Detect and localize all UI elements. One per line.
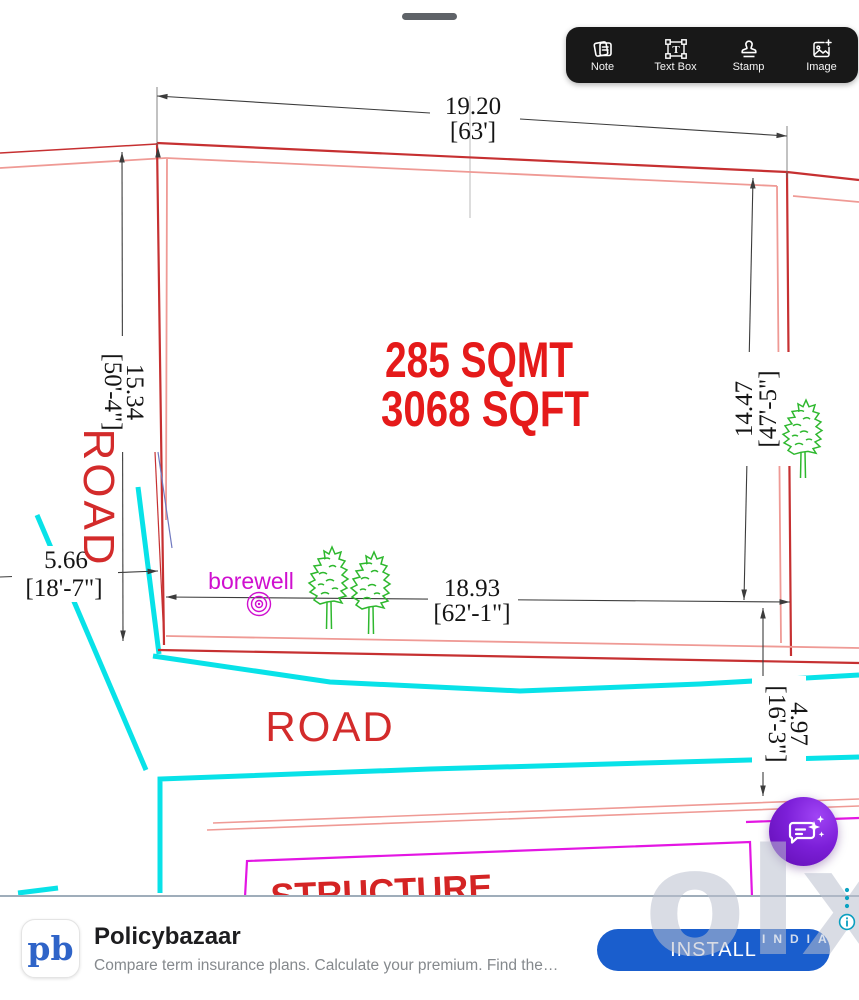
install-button-label: INSTALL (670, 939, 757, 962)
policybazaar-logo: pb (21, 919, 80, 978)
annotation-toolbar: Note T Text Box Sta (566, 27, 858, 83)
ai-assistant-fab[interactable] (769, 797, 838, 866)
plot-drawing-canvas[interactable]: 19.20 [63'] 15.34 [50'-4"] 14.47 [47'-5"… (0, 0, 859, 1000)
area-label-sqft: 3068 SQFT (381, 381, 589, 437)
ad-options-icon[interactable] (843, 886, 851, 910)
note-label: Note (591, 62, 614, 73)
text-box-label: Text Box (654, 62, 696, 73)
dim-top-ft: [63'] (450, 118, 496, 145)
drawing-paper (0, 0, 859, 1000)
ad-title: Policybazaar (94, 923, 241, 951)
text-box-icon: T (664, 38, 688, 60)
dim-bottom-m: 18.93 (444, 575, 500, 602)
stamp-label: Stamp (733, 62, 765, 73)
image-label: Image (806, 62, 837, 73)
ad-info-icon[interactable] (838, 913, 856, 931)
stamp-icon (738, 38, 760, 60)
dim-right-m: 14.47 (731, 381, 758, 437)
chat-sparkle-icon (781, 809, 827, 855)
dim-top-m: 19.20 (445, 93, 501, 120)
dim-left-lower-ft: [18'-7"] (25, 575, 102, 602)
ad-controls (838, 886, 856, 931)
dim-right-ft: [47'-5"] (755, 370, 782, 447)
text-box-button[interactable]: T Text Box (647, 38, 705, 73)
svg-text:T: T (672, 44, 680, 56)
note-button[interactable]: Note (574, 38, 632, 73)
pdf-annotation-viewer: 19.20 [63'] 15.34 [50'-4"] 14.47 [47'-5"… (0, 0, 859, 1000)
image-icon (810, 38, 834, 60)
road-label-left: ROAD (74, 428, 123, 567)
policybazaar-logo-text: pb (27, 932, 73, 965)
ad-banner[interactable]: pb Policybazaar Compare term insurance p… (0, 895, 859, 1000)
stamp-button[interactable]: Stamp (720, 38, 778, 73)
ad-description: Compare term insurance plans. Calculate … (94, 957, 594, 975)
borewell-label: borewell (208, 568, 294, 594)
note-icon (592, 38, 614, 60)
dim-bottom-ft: [62'-1"] (433, 600, 510, 627)
drag-handle[interactable] (402, 13, 457, 20)
install-button[interactable]: INSTALL (597, 929, 830, 971)
dim-left-ft: [50'-4"] (99, 353, 126, 430)
dim-right-lower-ft: [16'-3"] (763, 685, 790, 762)
image-button[interactable]: Image (793, 38, 851, 73)
road-label-bottom: ROAD (265, 703, 394, 750)
area-label-sqmt: 285 SQMT (385, 332, 573, 388)
